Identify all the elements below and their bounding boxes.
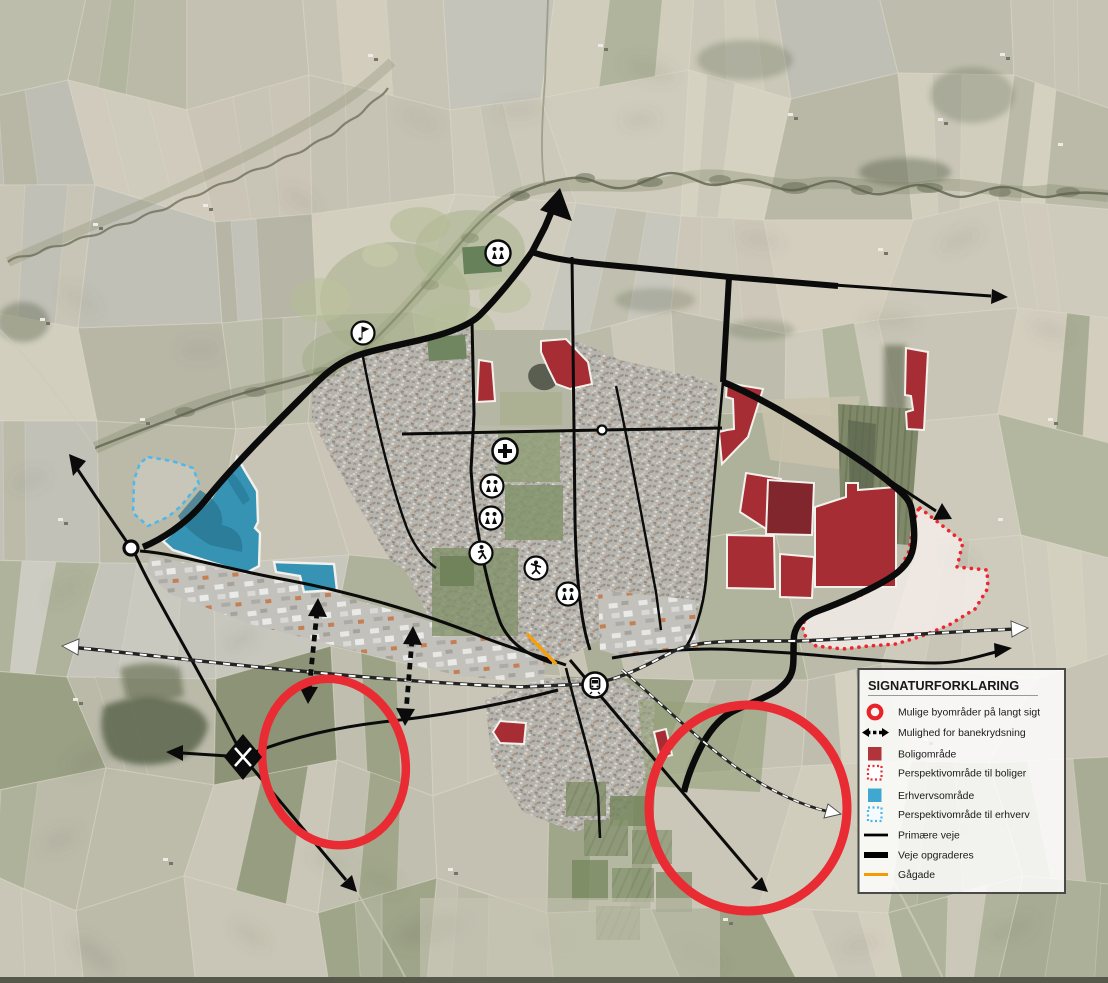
svg-text:Boligområde: Boligområde [898,749,957,761]
svg-text:Gågade: Gågade [898,869,935,881]
svg-text:Erhvervsområde: Erhvervsområde [898,790,974,802]
svg-text:Veje opgraderes: Veje opgraderes [898,851,974,862]
svg-text:Primære veje: Primære veje [898,831,960,842]
svg-text:Perspektivområde til erhverv: Perspektivområde til erhverv [898,809,1030,821]
svg-text:Mulighed for banekrydsning: Mulighed for banekrydsning [898,728,1026,739]
svg-text:SIGNATURFORKLARING: SIGNATURFORKLARING [868,678,1019,693]
svg-text:Mulige byområder på langt sigt: Mulige byområder på langt sigt [898,707,1040,719]
svg-text:Perspektivområde til boliger: Perspektivområde til boliger [898,768,1027,780]
